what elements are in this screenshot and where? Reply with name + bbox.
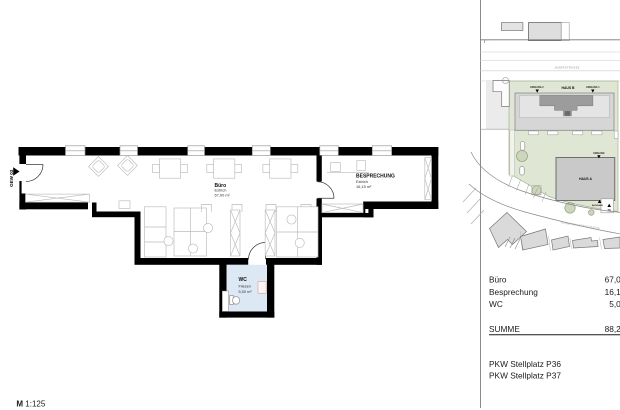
svg-text:Besprechung: Besprechung bbox=[489, 287, 538, 297]
svg-text:EINGANG: EINGANG bbox=[593, 152, 604, 155]
svg-text:PKW Stellplatz P37: PKW Stellplatz P37 bbox=[489, 371, 561, 381]
svg-text:16,15 m²: 16,15 m² bbox=[356, 184, 372, 189]
svg-text:SUMME: SUMME bbox=[489, 324, 520, 334]
svg-text:16,15: 16,15 bbox=[605, 287, 620, 297]
svg-text:67,00: 67,00 bbox=[605, 275, 620, 285]
svg-text:AUSGANG: AUSGANG bbox=[592, 204, 603, 207]
svg-text:M 1:125: M 1:125 bbox=[16, 400, 45, 409]
svg-text:Büro: Büro bbox=[489, 275, 507, 285]
svg-text:88,20: 88,20 bbox=[605, 324, 620, 334]
svg-text:5,00 m²: 5,00 m² bbox=[239, 289, 253, 294]
svg-text:WC: WC bbox=[239, 277, 248, 283]
svg-text:GEW 03: GEW 03 bbox=[9, 169, 14, 187]
svg-text:5,00: 5,00 bbox=[609, 299, 620, 309]
svg-text:HAUS A: HAUS A bbox=[579, 177, 592, 181]
svg-text:EINGANG 2: EINGANG 2 bbox=[530, 86, 544, 89]
svg-text:EINGANG 1: EINGANG 1 bbox=[586, 86, 600, 89]
svg-text:HAUS B: HAUS B bbox=[562, 86, 576, 90]
svg-text:PKW Stellplatz P36: PKW Stellplatz P36 bbox=[489, 359, 561, 369]
svg-text:67,00 m²: 67,00 m² bbox=[215, 192, 231, 197]
svg-text:WC: WC bbox=[489, 299, 503, 309]
svg-text:JAGERSTRASSE: JAGERSTRASSE bbox=[554, 66, 580, 70]
svg-text:SCHWARZENBERGSTRASSE: SCHWARZENBERGSTRASSE bbox=[561, 222, 600, 230]
